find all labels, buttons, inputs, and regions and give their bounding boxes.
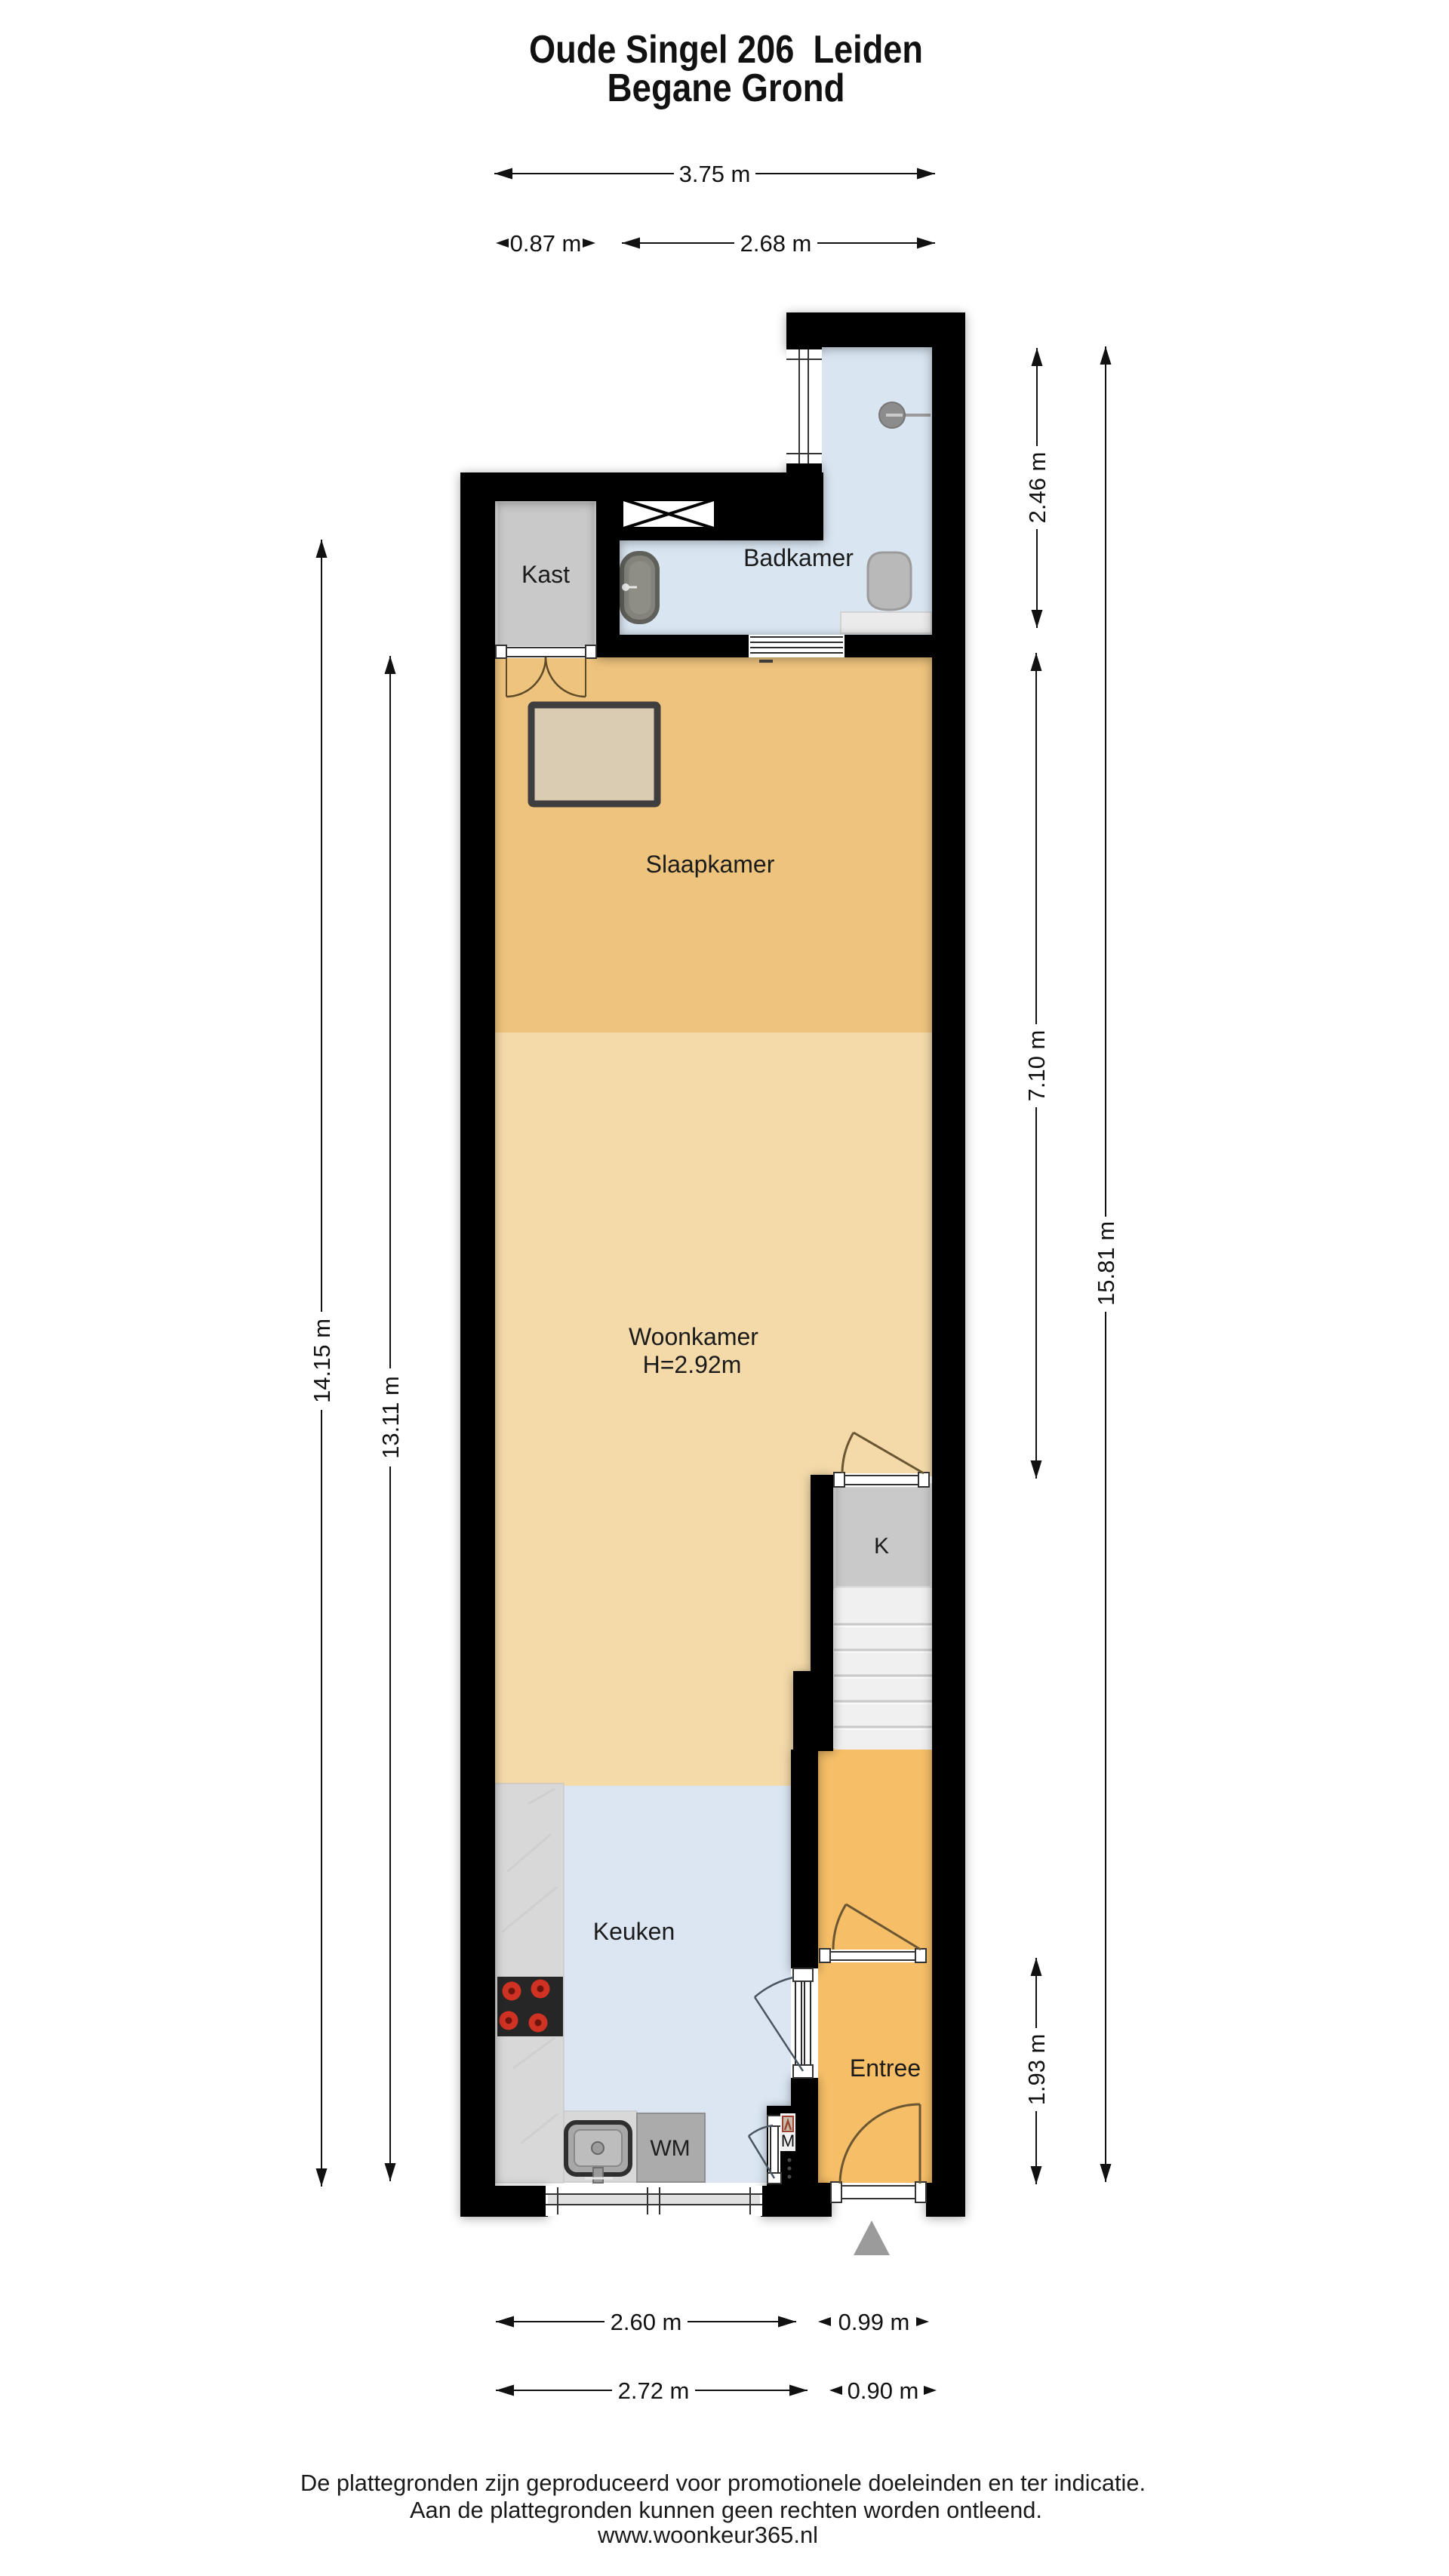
svg-text:0.87 m: 0.87 m — [510, 230, 582, 257]
svg-text:2.46 m: 2.46 m — [1024, 452, 1051, 524]
svg-text:Badkamer: Badkamer — [743, 544, 854, 571]
svg-text:De plattegronden zijn geproduc: De plattegronden zijn geproduceerd voor … — [300, 2470, 1146, 2496]
svg-text:2.68 m: 2.68 m — [740, 230, 812, 257]
svg-text:Slaapkamer: Slaapkamer — [646, 851, 775, 878]
svg-text:2.60 m: 2.60 m — [611, 2309, 682, 2335]
svg-text:H=2.92m: H=2.92m — [643, 1351, 742, 1378]
svg-text:Keuken: Keuken — [593, 1918, 675, 1945]
svg-text:3.75 m: 3.75 m — [679, 161, 751, 187]
svg-text:Entree: Entree — [850, 2054, 921, 2082]
svg-text:Aan de plattegronden kunnen ge: Aan de plattegronden kunnen geen rechten… — [410, 2497, 1042, 2523]
svg-text:WM: WM — [650, 2136, 690, 2161]
svg-text:www.woonkeur365.nl: www.woonkeur365.nl — [597, 2522, 818, 2548]
svg-text:0.99 m: 0.99 m — [838, 2309, 910, 2335]
svg-text:15.81 m: 15.81 m — [1093, 1221, 1119, 1306]
svg-text:0.90 m: 0.90 m — [848, 2377, 919, 2404]
svg-text:14.15 m: 14.15 m — [309, 1319, 335, 1403]
svg-text:1.93 m: 1.93 m — [1023, 2034, 1050, 2106]
svg-text:Begane Grond: Begane Grond — [608, 66, 845, 110]
svg-text:13.11 m: 13.11 m — [377, 1376, 404, 1459]
svg-text:Woonkamer: Woonkamer — [629, 1323, 758, 1350]
svg-text:2.72 m: 2.72 m — [618, 2377, 690, 2404]
svg-text:7.10 m: 7.10 m — [1023, 1030, 1050, 1102]
svg-text:M: M — [781, 2131, 795, 2150]
svg-text:Kast: Kast — [521, 561, 570, 588]
svg-text:Oude Singel 206 Leiden: Oude Singel 206 Leiden — [529, 28, 923, 72]
svg-text:K: K — [874, 1534, 889, 1559]
